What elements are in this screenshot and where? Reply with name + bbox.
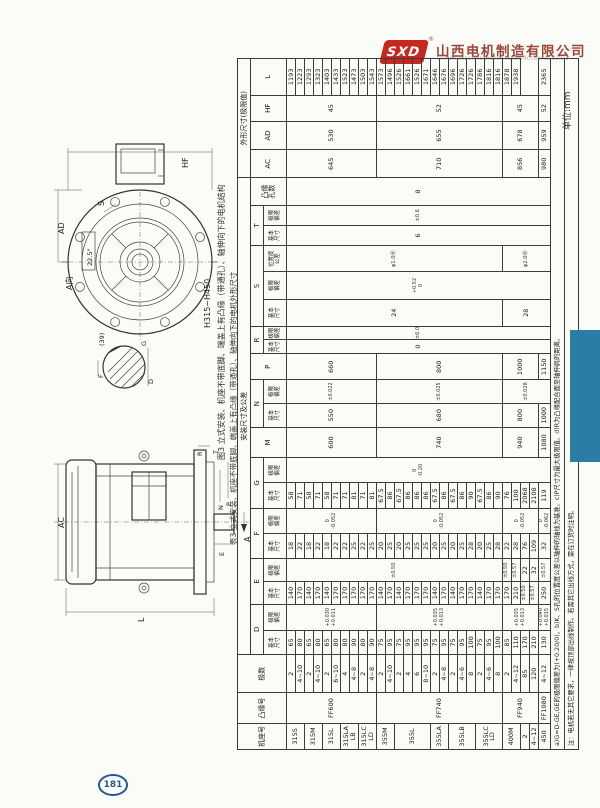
table-cell: 4~12 xyxy=(512,655,521,693)
table-cell: 1696 xyxy=(449,59,458,96)
table-cell: 109 xyxy=(530,533,539,558)
table-cell: 355L xyxy=(395,723,431,749)
table-cell: 355LB xyxy=(449,723,476,749)
table-cell: 6 xyxy=(287,225,551,245)
table-cell: 6~10 xyxy=(332,655,341,693)
header-cell: G xyxy=(251,458,264,509)
table-cell: ±0.57 xyxy=(530,582,539,604)
figure-caption: 图3 立式安装、机座不带底脚、端盖上有凸缘（带通孔）、轴伸向下的电机结构 xyxy=(216,184,227,460)
header-cell: 基本 尺寸 xyxy=(264,340,287,354)
table-cell: 655 xyxy=(377,121,503,149)
table-cell: 170 xyxy=(485,582,494,604)
table-cell: 355LA xyxy=(431,723,449,749)
table-cell: 86 xyxy=(458,483,467,508)
table-cell: 110 xyxy=(512,630,521,654)
table-cell: 4~8 xyxy=(368,655,377,693)
table-cell: 22 xyxy=(341,533,350,558)
header-cell: N xyxy=(251,380,264,427)
table-cell: 170 xyxy=(440,582,449,604)
header-cell: 凸缘 孔数 xyxy=(251,178,287,205)
table-cell: FF1080 xyxy=(539,693,551,723)
header-cell: 极数 xyxy=(238,655,287,693)
table-cell: 95 xyxy=(404,630,413,654)
table-cell: 0 -0.062 xyxy=(539,508,551,533)
table-cell: 1726 xyxy=(458,59,467,96)
flange-end-view-drawing: HF AD A向 22.5° S H315~H450 xyxy=(52,142,220,350)
table-cell: 0 -0.052 xyxy=(377,508,503,533)
table-cell: 25 xyxy=(440,533,449,558)
table-cell: 8 xyxy=(467,655,476,693)
table-cell: 1816 xyxy=(485,59,494,96)
table-cell: 20 xyxy=(449,533,458,558)
table-cell: 4~8 xyxy=(440,655,449,693)
notes-row: a)G=D-GE,GE的极限偏差为(+0.20/0)。b)K、S孔的位置度公差以… xyxy=(551,59,565,750)
table-cell: 1323 xyxy=(314,59,323,96)
table-cell: 22 xyxy=(521,559,530,582)
table-cell: 75 xyxy=(377,630,386,654)
table-cell: 400M xyxy=(503,723,521,749)
table-cell: 315S xyxy=(287,723,305,749)
dim-label-l: L xyxy=(137,617,146,622)
table-cell: 81 xyxy=(368,483,377,508)
table-cell: 600 xyxy=(287,427,377,457)
table-cell: 450 xyxy=(539,723,551,749)
table-cell: 86 xyxy=(386,483,395,508)
table-cell: 4~10 xyxy=(314,655,323,693)
table-cell: 67.5 xyxy=(377,483,386,508)
registered-mark-icon: ® xyxy=(428,36,434,43)
table-cell: 8 xyxy=(494,655,503,693)
table-cell: 58 xyxy=(305,483,314,508)
table-cell: 1661 xyxy=(404,59,413,96)
table-cell: 740 xyxy=(377,427,503,457)
dim-label-f: F xyxy=(97,374,105,378)
table-cell: 2108 xyxy=(530,483,539,508)
table-cell: 1526 xyxy=(413,59,422,96)
table-cell: 71 xyxy=(296,483,305,508)
table-cell: 80 xyxy=(332,630,341,654)
table-cell: 170 xyxy=(404,582,413,604)
table-cell: 678 xyxy=(503,121,539,149)
table-cell: 1726 xyxy=(467,59,476,96)
table-cell: 65 xyxy=(323,630,332,654)
table-cell: 20 xyxy=(476,533,485,558)
table-cell: 71 xyxy=(341,483,350,508)
table-cell: 1671 xyxy=(422,59,431,96)
dim-label-g: G xyxy=(140,341,148,346)
table-cell: 315LA LB xyxy=(341,723,359,749)
header-cell: AC xyxy=(251,150,287,178)
table-cell: 170 xyxy=(368,582,377,604)
table-cell: 315LC LD xyxy=(359,723,377,749)
table-cell: 25 xyxy=(386,533,395,558)
table-cell: 170 xyxy=(503,582,512,604)
table-cell: 90 xyxy=(494,483,503,508)
table-cell: 2 xyxy=(305,655,314,693)
header-cell: S xyxy=(251,246,264,327)
header-cell: L xyxy=(251,59,287,96)
table-cell: 100 xyxy=(494,630,503,654)
table-cell: 58 xyxy=(323,483,332,508)
table-cell: 52 xyxy=(539,95,551,121)
table-cell: 0 xyxy=(287,340,551,354)
dim-label-s: S xyxy=(97,201,106,206)
angle-label: 22.5° xyxy=(86,248,94,266)
table-cell: 1433 xyxy=(332,59,341,96)
table-cell: 140 xyxy=(377,582,386,604)
page-edge-index-tab xyxy=(570,330,600,462)
header-cell: M xyxy=(251,427,287,457)
table-cell: 28 xyxy=(512,533,521,558)
table-cell: 4~12 xyxy=(539,655,551,693)
table-cell: 22 xyxy=(359,533,368,558)
table-cell: 95 xyxy=(413,630,422,654)
table-cell: 4~8 xyxy=(350,655,359,693)
table-cell: 4~10 xyxy=(386,655,395,693)
table-cell: 1080 xyxy=(539,427,551,457)
table-cell: 20 xyxy=(395,533,404,558)
table-cell: 1526 xyxy=(395,59,404,96)
header-cell: E xyxy=(251,559,264,604)
scanned-motor-spec-page: { "page": { "unit_label": "单位:mm", "page… xyxy=(0,0,600,808)
header-cell: P xyxy=(251,354,287,380)
table-cell: ±0.6 xyxy=(287,205,551,225)
dim-label-r: R xyxy=(196,451,204,456)
table-cell: 71 xyxy=(314,483,323,508)
table-cell: 4~6 xyxy=(485,655,494,693)
table-cell: 90 xyxy=(350,630,359,654)
header-cell: 机座号 xyxy=(238,723,287,749)
table-cell: 95 xyxy=(386,630,395,654)
table-cell: 1938 xyxy=(512,59,521,96)
header-cell: 基本 尺寸 xyxy=(264,299,287,326)
table-cell: 0 -0.20 xyxy=(287,458,551,483)
header-cell: 基本 尺寸 xyxy=(264,533,287,558)
table-cell: 90 xyxy=(368,630,377,654)
table-cell: 65 xyxy=(305,630,314,654)
table-cell: 86 xyxy=(422,483,431,508)
table-cell: 0 -0.052 xyxy=(503,508,539,533)
table-cell: 2 xyxy=(377,655,386,693)
table-cell: 86 xyxy=(404,483,413,508)
table-cell: 550 xyxy=(287,403,377,427)
table-cell: 22 xyxy=(296,533,305,558)
table-cell: ±0.50 xyxy=(503,559,512,582)
table-cell: 315L xyxy=(323,723,341,749)
table-cell: 95 xyxy=(485,630,494,654)
table-cell: φ1.0Ⓜ xyxy=(287,246,503,272)
table-cell: 170 xyxy=(350,582,359,604)
table-cell: 130 xyxy=(539,630,551,654)
dim-label-ad: AD xyxy=(57,222,66,234)
table-cell: 24 xyxy=(287,299,503,326)
table-cell: 856 xyxy=(503,150,539,178)
header-cell: 基本 尺寸 xyxy=(264,403,287,427)
header-cell: 极限 偏差 xyxy=(264,380,287,403)
table-row: 355MFF740275+0.035 +0.013140200 -0.05267… xyxy=(377,59,386,750)
table-cell: 25 xyxy=(368,533,377,558)
header-cell: 凸缘号 xyxy=(238,693,287,723)
table-cell: 355LC LD xyxy=(476,723,503,749)
table-cell: 18 xyxy=(287,533,296,558)
table-cell: 170 xyxy=(332,582,341,604)
table-cell: ±0.57 xyxy=(512,559,521,582)
table-cell: 4 xyxy=(341,655,350,693)
table-cell: 959 xyxy=(539,121,551,149)
header-cell: F xyxy=(251,508,264,559)
table-cell: 1646 xyxy=(431,59,440,96)
table-cell: 45 xyxy=(503,95,539,121)
dim-label-d: D xyxy=(147,379,155,384)
table-cell: 170 xyxy=(413,582,422,604)
table-cell: 1543 xyxy=(368,59,377,96)
table-cell: ±0.025 xyxy=(377,380,503,403)
table-cell: +0.040 +0.015 xyxy=(539,604,551,630)
table-cell: 2 xyxy=(521,723,530,749)
table-cell: 67.5 xyxy=(395,483,404,508)
table-cell: 940 xyxy=(503,427,539,457)
table-cell: 2 xyxy=(503,655,512,693)
header-cell: 极限 偏差 xyxy=(264,559,287,582)
table-cell: 1473 xyxy=(350,59,359,96)
table-cell: +0.030 +0.011 xyxy=(287,604,377,630)
table-cell: 45 xyxy=(287,95,377,121)
table-cell: 75 xyxy=(395,630,404,654)
table-cell: 140 xyxy=(305,582,314,604)
header-cell: 极限 偏差 xyxy=(264,326,287,339)
header-cell: 极限 偏差 xyxy=(264,508,287,533)
table-cell: 800 xyxy=(503,403,539,427)
table-row: 450FF10804~12130+0.040 +0.015250±0.57320… xyxy=(539,59,551,750)
table-cell: 250 xyxy=(539,582,551,604)
frame-range-label: H315~H450 xyxy=(203,279,212,328)
table-cell: 1786 xyxy=(476,59,485,96)
table-cell: 86 xyxy=(413,483,422,508)
table-cell: 86 xyxy=(440,483,449,508)
table-cell: 800 xyxy=(377,354,503,380)
table-cell: 1193 xyxy=(287,59,296,96)
table-cell: FF740 xyxy=(377,693,503,723)
header-cell: 极限 偏差 xyxy=(264,205,287,225)
table-cell: 76 xyxy=(503,483,512,508)
header-cell: 位置度 公差 xyxy=(264,246,287,272)
table-cell: 75 xyxy=(431,630,440,654)
table-cell: ±0.50 xyxy=(287,559,503,582)
dim-label-hf: HF xyxy=(181,157,190,168)
table-cell: 170 xyxy=(296,582,305,604)
header-cell: AD xyxy=(251,121,287,149)
shaft-key-section-drawing: (39) G F D xyxy=(96,336,156,394)
table-cell: 140 xyxy=(449,582,458,604)
table-cell: 71 xyxy=(359,483,368,508)
table-cell: FF940 xyxy=(503,693,539,723)
table-cell: 170 xyxy=(386,582,395,604)
table-cell: 8~10 xyxy=(422,655,431,693)
table-cell: 76 xyxy=(521,533,530,558)
table-cell: 2365 xyxy=(539,59,551,96)
table-cell: 4 xyxy=(404,655,413,693)
table-cell: 140 xyxy=(287,582,296,604)
key-note-label: (39) xyxy=(98,333,106,346)
table-cell: 2 xyxy=(395,655,404,693)
table-cell: 1223 xyxy=(296,59,305,96)
table-cell: 645 xyxy=(287,150,377,178)
table-cell: ±0.028 xyxy=(503,380,551,403)
table-cell: φ2.0Ⓜ xyxy=(503,246,551,272)
table-cell: 1000 xyxy=(539,403,551,427)
table-cell: 86 xyxy=(485,483,494,508)
table-cell: 140 xyxy=(476,582,485,604)
table-cell: 6 xyxy=(413,655,422,693)
table-cell: 81 xyxy=(350,483,359,508)
table-cell: 4~10 xyxy=(296,655,305,693)
table-cell: a)G=D-GE,GE的极限偏差为(+0.20/0)。b)K、S孔的位置度公差以… xyxy=(551,59,565,750)
table-cell: 1150 xyxy=(539,354,551,380)
table-cell: 710 xyxy=(377,150,503,178)
header-cell: 极限 偏差 xyxy=(264,604,287,630)
table-cell: 210 xyxy=(512,582,521,604)
table-cell: +0.52 0 xyxy=(287,272,551,299)
header-cell: 基本 尺寸 xyxy=(264,630,287,654)
table-cell: 85 xyxy=(521,655,530,693)
table-cell: 2068 xyxy=(521,483,530,508)
table-cell: 22 xyxy=(332,533,341,558)
table-cell: 170 xyxy=(458,582,467,604)
table-cell: 4~6 xyxy=(458,655,467,693)
table-cell: 75 xyxy=(476,630,485,654)
table-cell: 119 xyxy=(539,483,551,508)
table-cell: 18 xyxy=(305,533,314,558)
dimension-table: 机座号凸缘号极数安装尺寸及公差外形尺寸(极限值)DEFGMNPRST凸缘 孔数A… xyxy=(237,58,579,750)
header-cell: 安装尺寸及公差 xyxy=(238,178,251,655)
table-cell: 25 xyxy=(350,533,359,558)
table-cell: 80 xyxy=(341,630,350,654)
table-cell: 71 xyxy=(332,483,341,508)
table-cell: 1573 xyxy=(377,59,386,96)
table-cell: ±0.50 xyxy=(521,582,530,604)
table-cell: 22 xyxy=(503,533,512,558)
header-row: 机座号凸缘号极数安装尺寸及公差外形尺寸(极限值) xyxy=(238,59,251,750)
table-cell: 170 xyxy=(341,582,350,604)
table-cell: 1496 xyxy=(386,59,395,96)
table-cell: 32 xyxy=(539,533,551,558)
table-cell: FF600 xyxy=(287,693,377,723)
table-cell: 25 xyxy=(413,533,422,558)
view-a-label: A向 xyxy=(64,277,74,290)
table-cell: 120 xyxy=(530,655,539,693)
table-cell: 355M xyxy=(377,723,395,749)
table-cell: 0 -0.052 xyxy=(287,508,377,533)
table-cell: 2 xyxy=(449,655,458,693)
header-cell: T xyxy=(251,205,264,245)
table-cell: 20 xyxy=(431,533,440,558)
table-cell: 210 xyxy=(530,630,539,654)
table-cell: 32 xyxy=(530,559,539,582)
table-cell: 100 xyxy=(467,630,476,654)
table-cell: 1000 xyxy=(503,354,539,380)
table-cell: 140 xyxy=(431,582,440,604)
header-cell: HF xyxy=(251,95,287,121)
table-cell: 2 xyxy=(323,655,332,693)
table-cell: 25 xyxy=(404,533,413,558)
table-cell: 170 xyxy=(467,582,476,604)
table-cell: 20 xyxy=(377,533,386,558)
table-cell: 2 xyxy=(287,655,296,693)
table-cell: 1403 xyxy=(323,59,332,96)
header-cell: D xyxy=(251,604,264,654)
table-cell: 4~12 xyxy=(530,723,539,749)
table-cell: 25 xyxy=(458,533,467,558)
table-cell: +0.035 +0.013 xyxy=(503,604,539,630)
table-cell: 75 xyxy=(449,630,458,654)
table-cell: 58 xyxy=(287,483,296,508)
table-cell: 18 xyxy=(323,533,332,558)
table-cell: 170 xyxy=(521,630,530,654)
table-cell: 95 xyxy=(422,630,431,654)
table-cell: 1816 xyxy=(494,59,503,96)
table-cell: 1523 xyxy=(341,59,350,96)
table-cell: 140 xyxy=(323,582,332,604)
table-cell: 67.5 xyxy=(431,483,440,508)
page-number-badge: 181 xyxy=(98,774,128,796)
table-cell: 530 xyxy=(287,121,377,149)
table-cell: ±6.0 xyxy=(287,326,551,339)
table-cell: 65 xyxy=(287,630,296,654)
table-cell: 100 xyxy=(512,483,521,508)
table-cell: 2 xyxy=(476,655,485,693)
table-cell: ±0.022 xyxy=(287,380,377,403)
table-row: 400MFF940285+0.035 +0.013170±0.50220 -0.… xyxy=(503,59,512,750)
table-cell: 95 xyxy=(458,630,467,654)
table-cell: 170 xyxy=(359,582,368,604)
table-cell: ±0.57 xyxy=(539,559,551,582)
dim-label-ac: AC xyxy=(57,517,66,528)
table-cell: 8 xyxy=(287,178,551,205)
table-cell: 85 xyxy=(503,630,512,654)
table-cell: 52 xyxy=(377,95,503,121)
table-cell: 660 xyxy=(287,354,377,380)
dimension-table-rotated: 机座号凸缘号极数安装尺寸及公差外形尺寸(极限值)DEFGMNPRST凸缘 孔数A… xyxy=(237,58,546,750)
header-cell: 基本 尺寸 xyxy=(264,225,287,245)
table-cell: 22 xyxy=(314,533,323,558)
table-cell: 1293 xyxy=(305,59,314,96)
table-cell: 67.5 xyxy=(476,483,485,508)
table-cell: 28 xyxy=(494,533,503,558)
table-cell: 28 xyxy=(467,533,476,558)
table-cell: 28 xyxy=(503,299,551,326)
table-cell: 170 xyxy=(314,582,323,604)
table-cell: 1676 xyxy=(440,59,449,96)
table-cell: +0.035 +0.013 xyxy=(377,604,503,630)
table-cell: 2 xyxy=(431,655,440,693)
table-cell: 140 xyxy=(395,582,404,604)
table-cell: 80 xyxy=(296,630,305,654)
table-cell: 2 xyxy=(359,655,368,693)
table-row: 315SFF600265+0.030 +0.011140±0.50180 -0.… xyxy=(287,59,296,750)
table-cell: 1878 xyxy=(503,59,512,96)
table-cell: 67.5 xyxy=(449,483,458,508)
table-cell: 80 xyxy=(359,630,368,654)
table-cell: 1503 xyxy=(359,59,368,96)
header-cell: 外形尺寸(极限值) xyxy=(238,59,251,178)
table-cell: 25 xyxy=(422,533,431,558)
table-cell: 95 xyxy=(440,630,449,654)
table-cell: 90 xyxy=(467,483,476,508)
header-cell: R xyxy=(251,326,264,353)
table-cell: 315M xyxy=(305,723,323,749)
header-cell: 基本 尺寸 xyxy=(264,582,287,604)
table-cell: 680 xyxy=(377,403,503,427)
